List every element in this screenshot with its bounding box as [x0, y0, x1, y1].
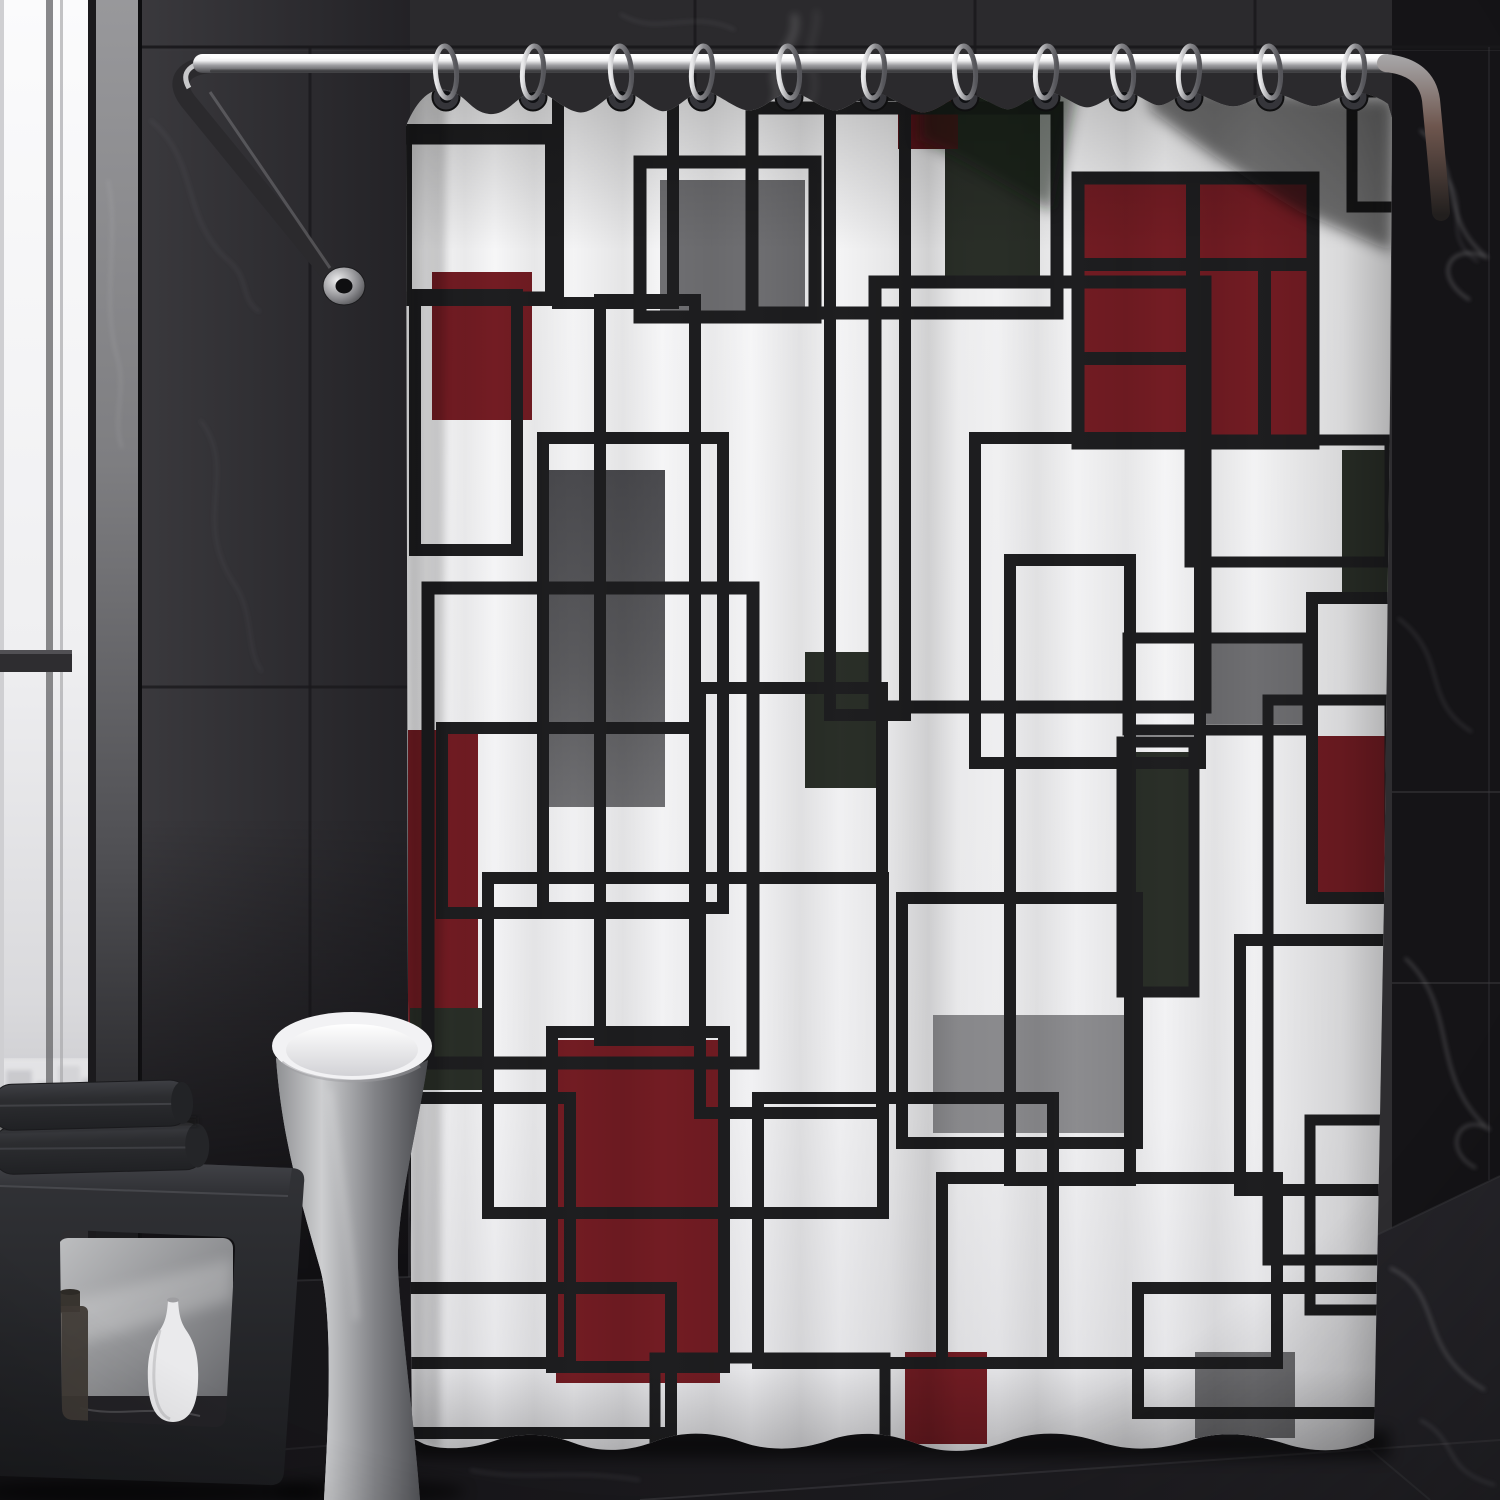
scene-svg — [0, 0, 1500, 1500]
bathroom-scene — [0, 0, 1500, 1500]
vignette — [0, 0, 1500, 1500]
